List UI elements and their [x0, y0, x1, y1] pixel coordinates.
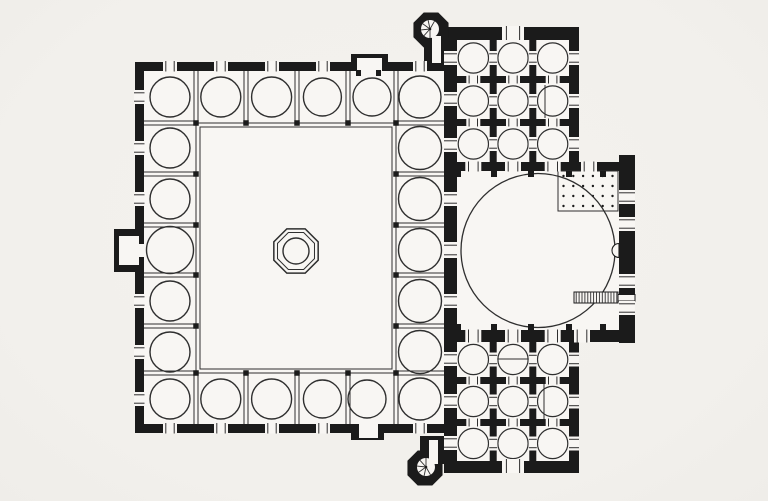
- window-opening: [444, 436, 457, 450]
- arcade-pier: [393, 272, 399, 278]
- window-opening: [529, 137, 537, 151]
- platform-dot: [582, 195, 584, 197]
- hall-pier: [566, 324, 572, 330]
- window-opening: [466, 377, 480, 385]
- window-opening: [466, 119, 480, 127]
- wing-bay-floor: [457, 426, 490, 461]
- window-opening: [489, 137, 497, 151]
- window-opening: [546, 76, 560, 84]
- window-opening: [134, 192, 145, 206]
- north-portal-jamb: [376, 70, 381, 76]
- window-opening: [316, 423, 330, 434]
- window-opening: [444, 192, 457, 206]
- window-opening: [506, 419, 520, 427]
- arcade-pier: [193, 323, 199, 329]
- platform-dot: [562, 205, 564, 207]
- platform-dot: [592, 175, 594, 177]
- west-portal-passage: [139, 244, 146, 257]
- wing-bay-floor: [536, 126, 569, 162]
- hall-pier: [455, 171, 461, 177]
- window-opening: [444, 352, 457, 366]
- window-opening: [163, 61, 177, 72]
- window-opening: [466, 76, 480, 84]
- arcade-pier: [393, 171, 399, 177]
- wing-bay-floor: [536, 342, 569, 377]
- north-portal-jamb: [356, 70, 361, 76]
- window-opening: [506, 119, 520, 127]
- wing-bay-floor: [457, 384, 490, 419]
- hall-pier: [528, 324, 534, 330]
- window-opening: [502, 26, 524, 40]
- window-opening: [546, 419, 560, 427]
- arcade-pier: [243, 370, 249, 376]
- window-opening: [506, 76, 520, 84]
- window-opening: [545, 162, 561, 172]
- arcade-pier: [294, 370, 300, 376]
- hall-pier: [600, 171, 606, 177]
- hall-pier: [491, 324, 497, 330]
- arcade-pier: [193, 171, 199, 177]
- window-opening: [489, 395, 497, 409]
- window-opening: [489, 437, 497, 451]
- arcade-pier: [294, 120, 300, 126]
- southwest-minaret-newel: [425, 466, 428, 469]
- platform-dot: [562, 195, 564, 197]
- window-opening: [444, 92, 457, 106]
- window-opening: [529, 353, 537, 367]
- window-opening: [444, 138, 457, 152]
- window-opening: [546, 377, 560, 385]
- window-opening: [316, 61, 330, 72]
- wing-bay-floor: [457, 126, 490, 162]
- window-opening: [444, 242, 457, 258]
- window-opening: [569, 94, 579, 108]
- platform-dot: [562, 175, 564, 177]
- platform-dot: [582, 175, 584, 177]
- platform-dot: [602, 185, 604, 187]
- window-opening: [529, 395, 537, 409]
- arcade-pier: [193, 120, 199, 126]
- window-opening: [545, 330, 561, 343]
- window-opening: [574, 330, 590, 343]
- window-opening: [619, 190, 635, 204]
- window-opening: [465, 162, 481, 172]
- platform-dot: [582, 205, 584, 207]
- west-portal-recess: [119, 236, 139, 265]
- window-opening: [134, 392, 145, 406]
- arcade-pier: [193, 370, 199, 376]
- wing-bay-floor: [497, 426, 530, 461]
- window-opening: [214, 61, 228, 72]
- arcade-pier: [393, 120, 399, 126]
- window-opening: [134, 90, 145, 104]
- platform-dot: [602, 195, 604, 197]
- arcade-pier: [193, 272, 199, 278]
- window-opening: [505, 330, 521, 343]
- arcade-pier: [393, 222, 399, 228]
- window-opening: [489, 51, 497, 65]
- wing-bay-floor: [457, 83, 490, 119]
- platform-dot: [592, 185, 594, 187]
- window-opening: [529, 94, 537, 108]
- window-opening: [505, 162, 521, 172]
- wing-bay-floor: [457, 342, 490, 377]
- arcade-pier: [393, 370, 399, 376]
- arcade-pier: [393, 323, 399, 329]
- window-opening: [265, 423, 279, 434]
- hall-pier: [455, 324, 461, 330]
- arcade-pier: [345, 120, 351, 126]
- window-opening: [413, 423, 427, 434]
- platform-dot: [611, 205, 613, 207]
- wing-bay-floor: [536, 426, 569, 461]
- window-opening: [569, 353, 579, 367]
- platform-dot: [572, 185, 574, 187]
- arcade-pier: [193, 222, 199, 228]
- wing-bay-floor: [497, 83, 530, 119]
- window-opening: [569, 395, 579, 409]
- window-opening: [466, 419, 480, 427]
- wing-bay-floor: [497, 384, 530, 419]
- arcade-pier: [243, 120, 249, 126]
- window-opening: [529, 437, 537, 451]
- window-opening: [619, 301, 635, 315]
- wing-bay-floor: [497, 126, 530, 162]
- window-opening: [465, 330, 481, 343]
- window-opening: [134, 141, 145, 155]
- window-opening: [506, 377, 520, 385]
- hall-pier: [528, 171, 534, 177]
- window-opening: [265, 61, 279, 72]
- window-opening: [489, 353, 497, 367]
- platform-dot: [611, 195, 613, 197]
- window-opening: [569, 437, 579, 451]
- window-opening: [214, 423, 228, 434]
- window-opening: [134, 345, 145, 359]
- platform-dot: [611, 185, 613, 187]
- platform-dot: [592, 205, 594, 207]
- window-opening: [444, 394, 457, 408]
- window-opening: [546, 119, 560, 127]
- northwest-minaret-newel: [429, 28, 432, 31]
- hall-pier: [600, 324, 606, 330]
- wing-bay-floor: [536, 384, 569, 419]
- hall-pier: [566, 171, 572, 177]
- wing-bay-floor: [457, 40, 490, 76]
- platform-dot: [572, 175, 574, 177]
- window-opening: [502, 459, 524, 473]
- platform-dot: [611, 175, 613, 177]
- mosque-floor-plan: [0, 0, 768, 501]
- window-opening: [134, 294, 145, 308]
- platform-dot: [572, 205, 574, 207]
- window-opening: [444, 51, 457, 65]
- scanned-slide-background: [0, 0, 768, 501]
- wing-bay-floor: [536, 40, 569, 76]
- minbar-neck: [618, 295, 635, 302]
- platform-dot: [572, 195, 574, 197]
- hall-pier: [491, 171, 497, 177]
- window-opening: [489, 94, 497, 108]
- window-opening: [413, 61, 427, 72]
- platform-dot: [562, 185, 564, 187]
- window-opening: [619, 217, 635, 231]
- window-opening: [581, 162, 597, 172]
- window-opening: [529, 51, 537, 65]
- south-portal-recess: [359, 422, 378, 438]
- window-opening: [163, 423, 177, 434]
- northwest-minaret-corridor: [432, 36, 441, 63]
- window-opening: [569, 51, 579, 65]
- wing-bay-floor: [536, 83, 569, 119]
- arcade-pier: [345, 370, 351, 376]
- window-opening: [569, 137, 579, 151]
- window-opening: [444, 294, 457, 308]
- window-opening: [619, 274, 635, 288]
- wing-bay-floor: [497, 40, 530, 76]
